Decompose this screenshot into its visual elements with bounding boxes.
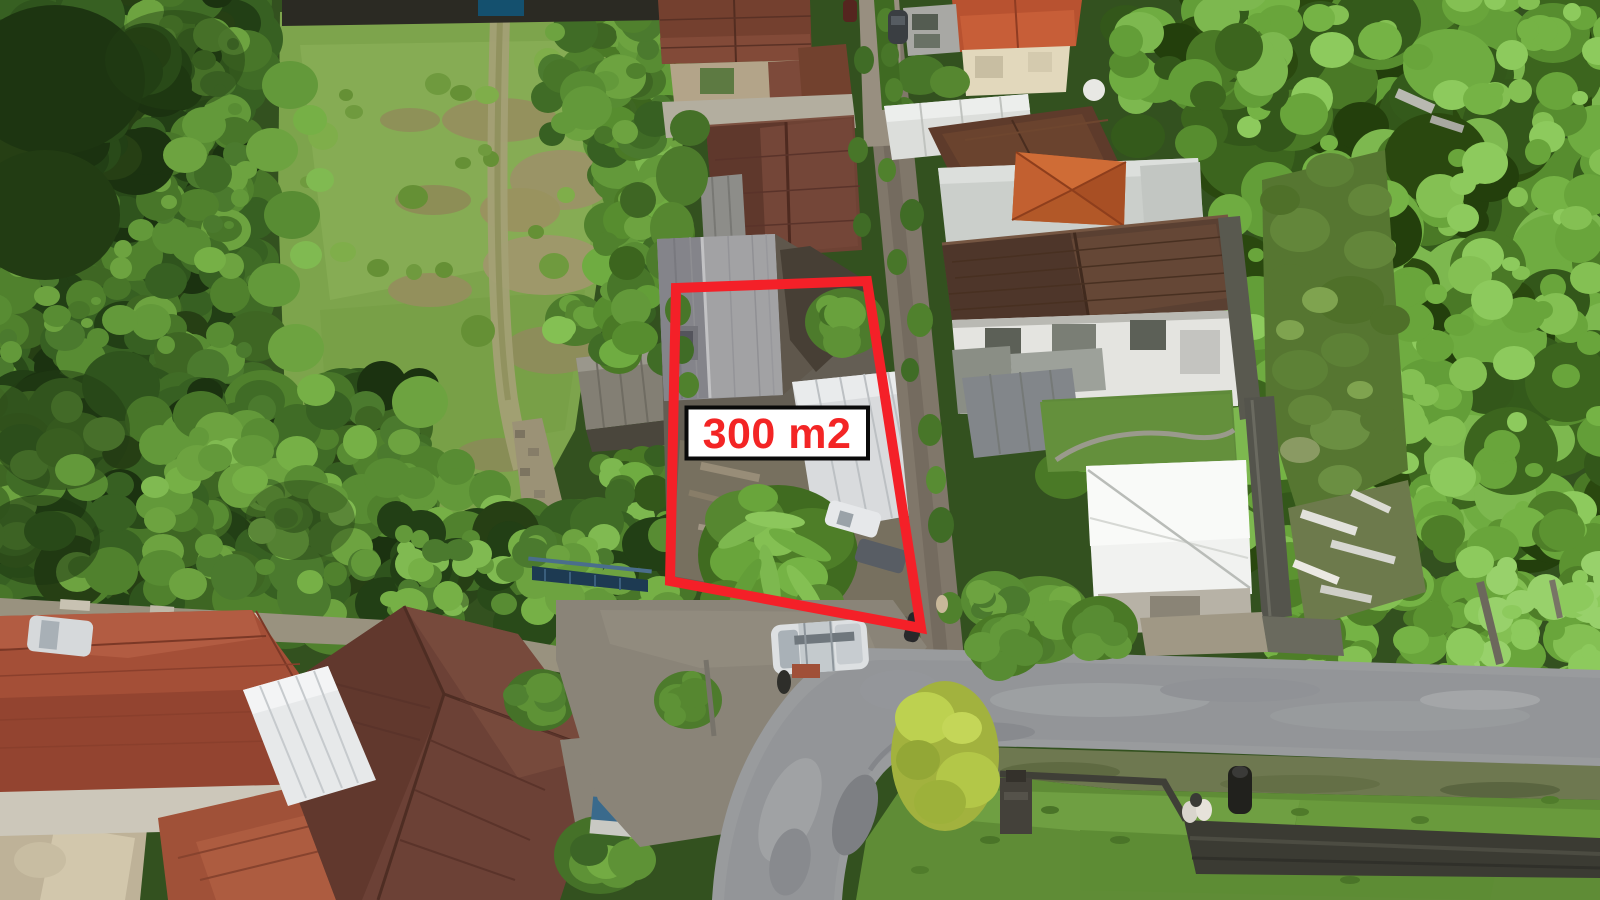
svg-text:300 m2: 300 m2 xyxy=(703,410,852,458)
